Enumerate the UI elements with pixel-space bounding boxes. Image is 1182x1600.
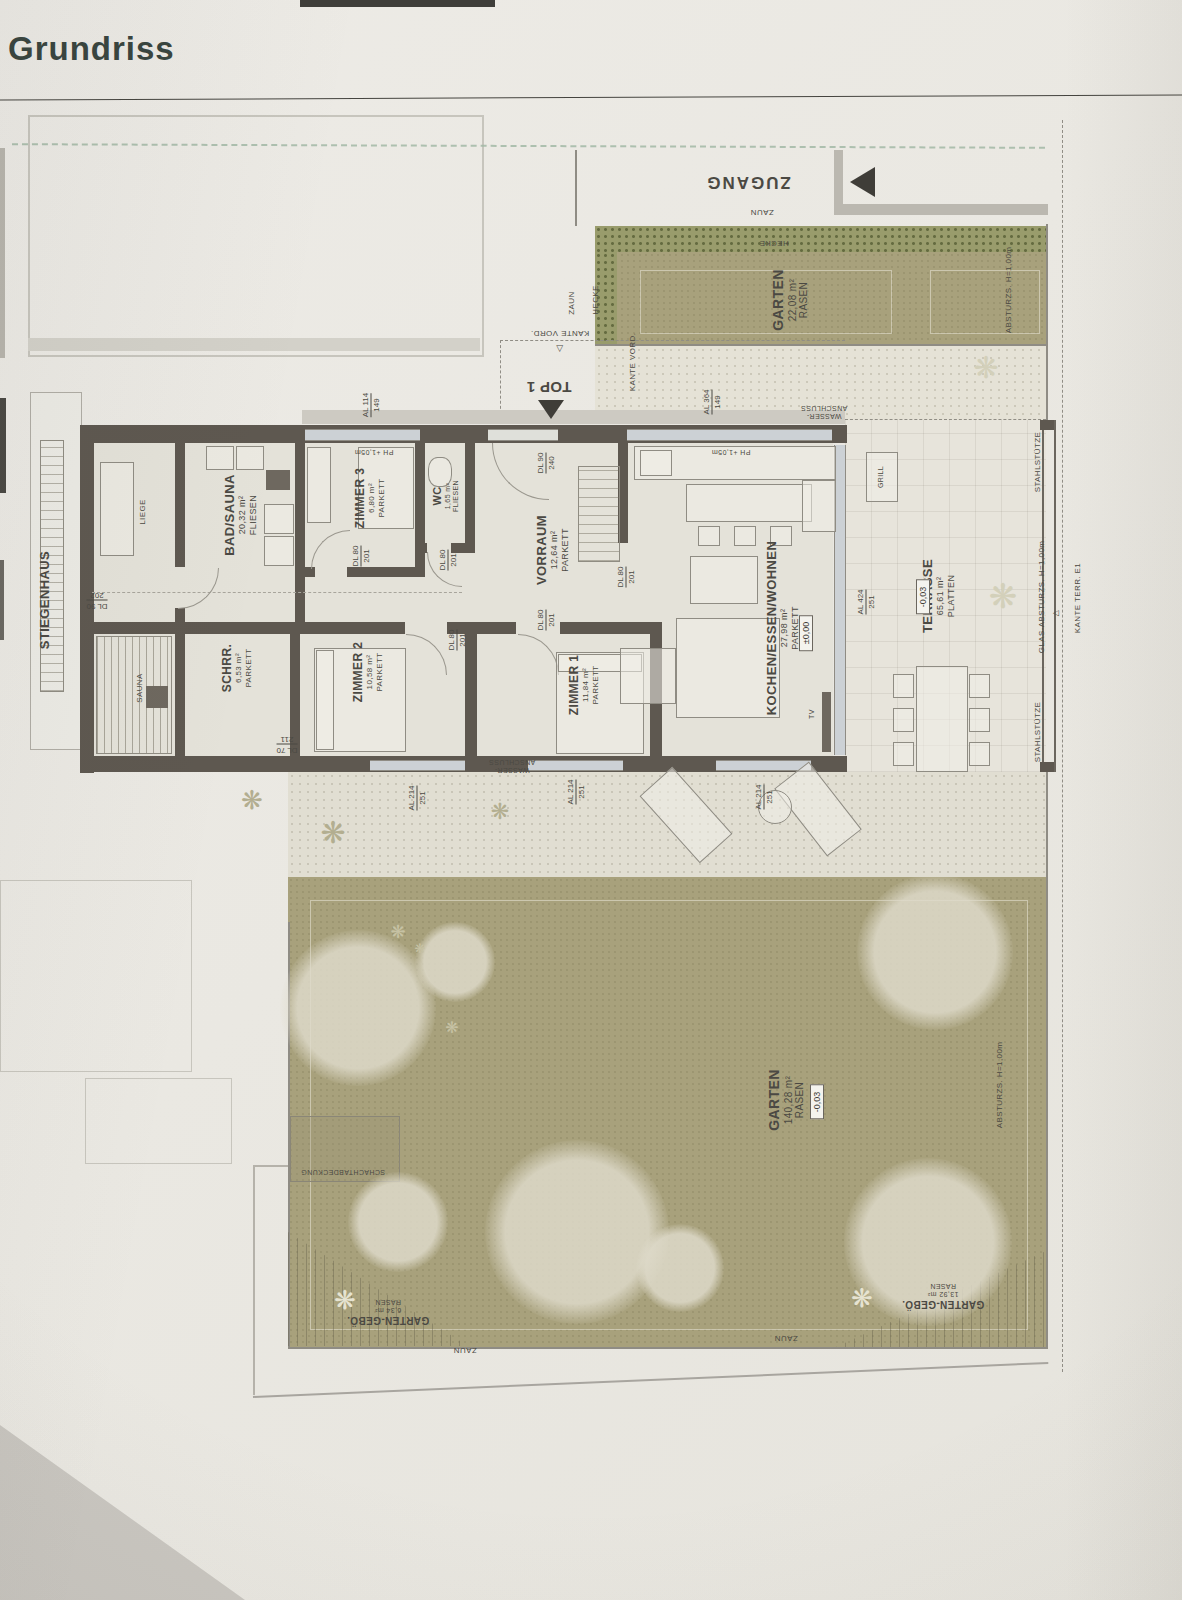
page-title: Grundriss	[8, 30, 175, 68]
bath-fixture	[266, 470, 290, 490]
washer	[206, 446, 234, 470]
top1-entrance-arrow-icon	[538, 400, 564, 419]
tv-board	[822, 692, 831, 752]
window-bottom-2	[528, 760, 623, 771]
entrance-door-top1	[488, 429, 558, 441]
garten-geboe-left-label: GARTEN-GEBÖ.6,34 m²RASEN	[347, 1298, 430, 1326]
wasser-anschluss-top-label: WASSER-ANSCHLUSS	[801, 404, 847, 421]
wall-liege-bad-upper	[175, 443, 185, 567]
schachtabdeckung-label: SCHACHTABDECKUNG	[301, 1168, 385, 1176]
plant-icon: ❋	[445, 1020, 458, 1036]
room-label-vorraum: VORRAUM12,64 m²PARKETT	[534, 515, 571, 585]
window-top-zimmer3	[305, 429, 420, 441]
lawn-strip-inner-1	[640, 270, 892, 334]
wall-bad-zimmer3	[295, 443, 305, 622]
neighbor-outline-left-1	[0, 880, 192, 1072]
plant-icon: ❋	[390, 923, 405, 941]
wall-zimmer3-bottom-b	[347, 567, 415, 577]
elevation-terrasse: -0,03	[916, 580, 930, 615]
terrace-table	[916, 666, 968, 772]
stahlstuetze-label-2: STAHLSTÜTZE	[1033, 702, 1042, 763]
property-line-right	[1062, 120, 1063, 1372]
terrace-chair-6	[969, 742, 990, 766]
garden-tree	[857, 874, 1013, 1030]
washbasin-2	[264, 536, 294, 566]
elevation-garten: -0,03	[810, 1085, 824, 1120]
wall-zimmer2-zimmer1	[465, 634, 477, 756]
ph-105-left-label: PH +1,05m	[355, 448, 394, 456]
garden-tree	[348, 1172, 448, 1272]
plant-icon: ❋	[989, 579, 1018, 613]
room-label-bad-sauna: BAD/SAUNA20,32 m²FLIESEN	[222, 474, 259, 556]
window-dim-al-214-251-a: AL 214251	[407, 785, 428, 810]
wall-wc-bottom-a	[415, 543, 427, 553]
sofa-chaise	[620, 648, 676, 704]
terrace-chair-2	[893, 708, 914, 732]
liege-label: LIEGE	[138, 499, 147, 525]
steel-post-top	[1040, 420, 1054, 430]
plant-icon: ❋	[320, 818, 345, 848]
photo-edge-left-gray	[0, 148, 5, 358]
wall-mid-1	[92, 622, 405, 634]
bar-stool-2	[734, 526, 756, 546]
room-label-zimmer-3: ZIMMER 36,80 m²PARKETT	[353, 468, 386, 529]
stiegenhaus-label: STIEGENHAUS	[37, 551, 52, 649]
hecke-strip-left-label: HECKE	[591, 285, 600, 315]
floor-plan-photo: Grundriss	[0, 0, 1182, 1600]
garden-tree	[280, 930, 436, 1086]
zimmer2-pillow	[316, 650, 334, 750]
door-dim-dl-80-201-z2: DL 80201	[447, 629, 468, 650]
door-dim-dl-80-201-wc: DL 80201	[438, 549, 459, 570]
grill-label: GRILL	[877, 466, 885, 488]
door-dim-dl-90-240: DL 90240	[536, 452, 557, 473]
garden-tree	[636, 1224, 724, 1312]
room-label-zimmer-2: ZIMMER 210,58 m²PARKETT	[351, 642, 384, 703]
room-label-zimmer-1: ZIMMER 111,84 m²PARKETT	[567, 655, 600, 716]
window-dim-al-214-251-c: AL 214251	[754, 784, 775, 809]
wall-liege-bad-stub	[175, 608, 185, 622]
terrace-chair-5	[969, 708, 990, 732]
title-divider	[0, 94, 1182, 100]
window-dim-al-114-149: AL 114149	[361, 393, 382, 417]
kante-vord-label-2: KANTE VORD.	[628, 333, 637, 392]
photo-edge-left-dark-1	[0, 398, 6, 493]
door-dim-dl-80-201-z3: DL 80201	[351, 545, 372, 566]
door-dim-dl-70-211: DL 70211	[276, 734, 297, 755]
wall-sauna-schrr	[175, 634, 185, 756]
zaun-top-label: ZAUN	[750, 207, 773, 216]
hecke-top-label: HECKE	[759, 238, 789, 247]
neighbor-outline-top	[28, 115, 484, 357]
neighbor-strip-top	[28, 338, 480, 351]
wasser-anschluss-bottom-label: WASSER-ANSCHLUSS	[489, 758, 535, 775]
door-dim-dl-80-201-kueche: DL 80201	[616, 566, 637, 587]
zaun-bottom-right-label: ZAUN	[774, 1333, 797, 1342]
wall-wc-right	[465, 443, 475, 553]
plant-icon: ❋	[851, 1285, 873, 1311]
stahlstuetze-label-1: STAHLSTÜTZE	[1033, 432, 1042, 493]
kante-terr-marker: △	[1051, 610, 1060, 617]
tall-kitchen-unit	[802, 480, 836, 532]
fence-top-horizontal	[834, 204, 1048, 215]
photo-edge-top	[300, 0, 495, 7]
plant-icon: ❋	[241, 787, 263, 813]
zaun-strip-left-label: ZAUN	[567, 291, 576, 314]
plan-sheet-bottom-edge	[253, 1362, 1048, 1398]
garden-tree	[415, 922, 495, 1002]
room-label-wc: WC1,65 m²FLIESEN	[431, 480, 460, 512]
steel-post-bottom	[1040, 762, 1054, 772]
kitchen-island	[686, 484, 812, 522]
window-dim-al-214-251-b: AL 214251	[566, 779, 587, 804]
wall-zimmer3-wc	[415, 443, 425, 577]
dryer	[236, 446, 264, 470]
garten-strip-label: GARTEN22,08 m²RASEN	[770, 269, 810, 331]
garten-geboe-right-label: GARTEN-GEBÖ.13,92 m²RASEN	[902, 1282, 985, 1310]
room-label-kochen-essen-wohnen: KOCHEN/ESSEN/WOHNEN27,98 m²PARKETT	[764, 541, 801, 715]
kante-vord-label-1: KANTE VORD.	[531, 328, 590, 337]
elevation-wohnen: ±0,00	[799, 615, 813, 651]
plot-right-line	[1046, 224, 1048, 420]
window-top-kitchen-glazing	[627, 429, 832, 441]
canopy-band	[302, 410, 845, 424]
room-label-schrankraum: SCHRR.6,53 m²PARKETT	[220, 644, 253, 692]
plan-sheet-left-notch	[253, 1165, 288, 1167]
door-dim-dl-90-202: DL 90202	[86, 590, 107, 611]
photo-edge-left-dark-2	[0, 560, 4, 640]
plan-sheet-left-edge	[253, 1165, 255, 1395]
kante-terr-label: KANTE TERR. E1	[1073, 563, 1082, 633]
sauna-label: SAUNA	[135, 673, 144, 703]
dining-table-indoor	[690, 556, 758, 604]
wall-mid-3	[560, 622, 662, 634]
neighbor-outline-left-2	[85, 1078, 232, 1164]
garten-main-label: GARTEN140,28 m²RASEN	[766, 1069, 806, 1131]
terrace-roof-edge-dashed	[845, 419, 1046, 420]
liege-lounger	[100, 462, 134, 556]
washbasin-1	[264, 504, 294, 534]
canopy-edge-top	[500, 340, 845, 341]
zimmer3-wardrobe	[307, 447, 331, 523]
top1-label: TOP 1	[527, 378, 572, 396]
terrace-chair-1	[893, 674, 914, 698]
ph-105-right-label: PH +1,05m	[712, 448, 751, 456]
tv-label: TV	[808, 709, 816, 719]
zugang-arrow-icon	[850, 167, 875, 197]
absturz-strip-label: ABSTURZS. H=1,00m	[1004, 247, 1013, 334]
plant-icon: ❋	[415, 942, 426, 955]
zugang-label: ZUGANG	[705, 172, 791, 192]
internal-stairs	[578, 466, 620, 562]
fence-bottom-line	[288, 1347, 1048, 1349]
sauna-stove	[146, 686, 168, 708]
photo-corner-wedge	[0, 1425, 245, 1600]
fence-top-vertical	[834, 150, 843, 210]
kante-vord-marker: ▽	[556, 343, 563, 354]
window-bottom-1	[370, 760, 465, 771]
hedge-top-band	[595, 226, 1048, 252]
terrace-chair-3	[893, 742, 914, 766]
section-line	[92, 592, 462, 593]
zaun-bottom-left-label: ZAUN	[453, 1345, 476, 1354]
terrace-chair-4	[969, 674, 990, 698]
kitchen-sink	[640, 450, 672, 476]
glas-absturz-label: GLAS-ABSTURZS. H=1,00m	[1037, 541, 1046, 654]
bar-stool-1	[698, 526, 720, 546]
plant-icon: ❋	[973, 353, 998, 383]
garden-tree	[485, 1140, 669, 1324]
window-dim-al-424-251: AL 424251	[856, 589, 877, 614]
lawn-strip-inner-2	[930, 270, 1040, 334]
window-dim-al-364-149: AL 364149	[702, 389, 723, 414]
absturz-garten-label: ABSTURZS. H=1,00m	[995, 1042, 1004, 1129]
boundary-left-of-strip	[575, 150, 577, 226]
door-dim-dl-80-201-z1: DL 80201	[536, 609, 557, 630]
plant-icon: ❋	[491, 801, 509, 823]
